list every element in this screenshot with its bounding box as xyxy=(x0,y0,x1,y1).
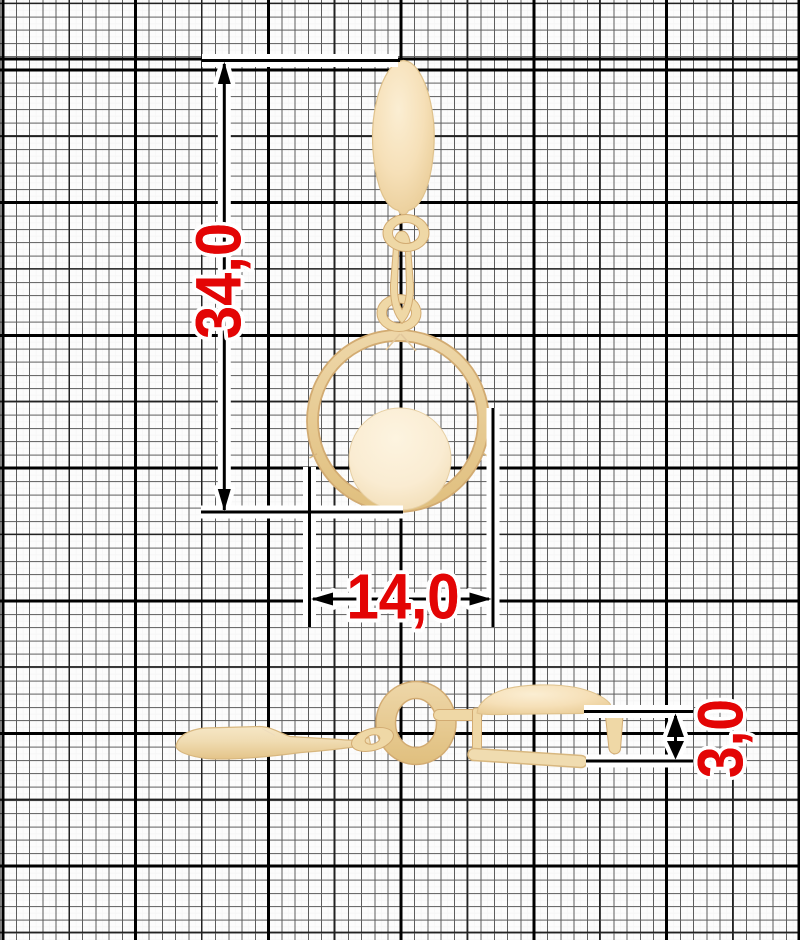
svg-text:34,0: 34,0 xyxy=(183,223,255,339)
svg-text:14,0: 14,0 xyxy=(347,561,460,633)
svg-text:3,0: 3,0 xyxy=(685,699,757,778)
